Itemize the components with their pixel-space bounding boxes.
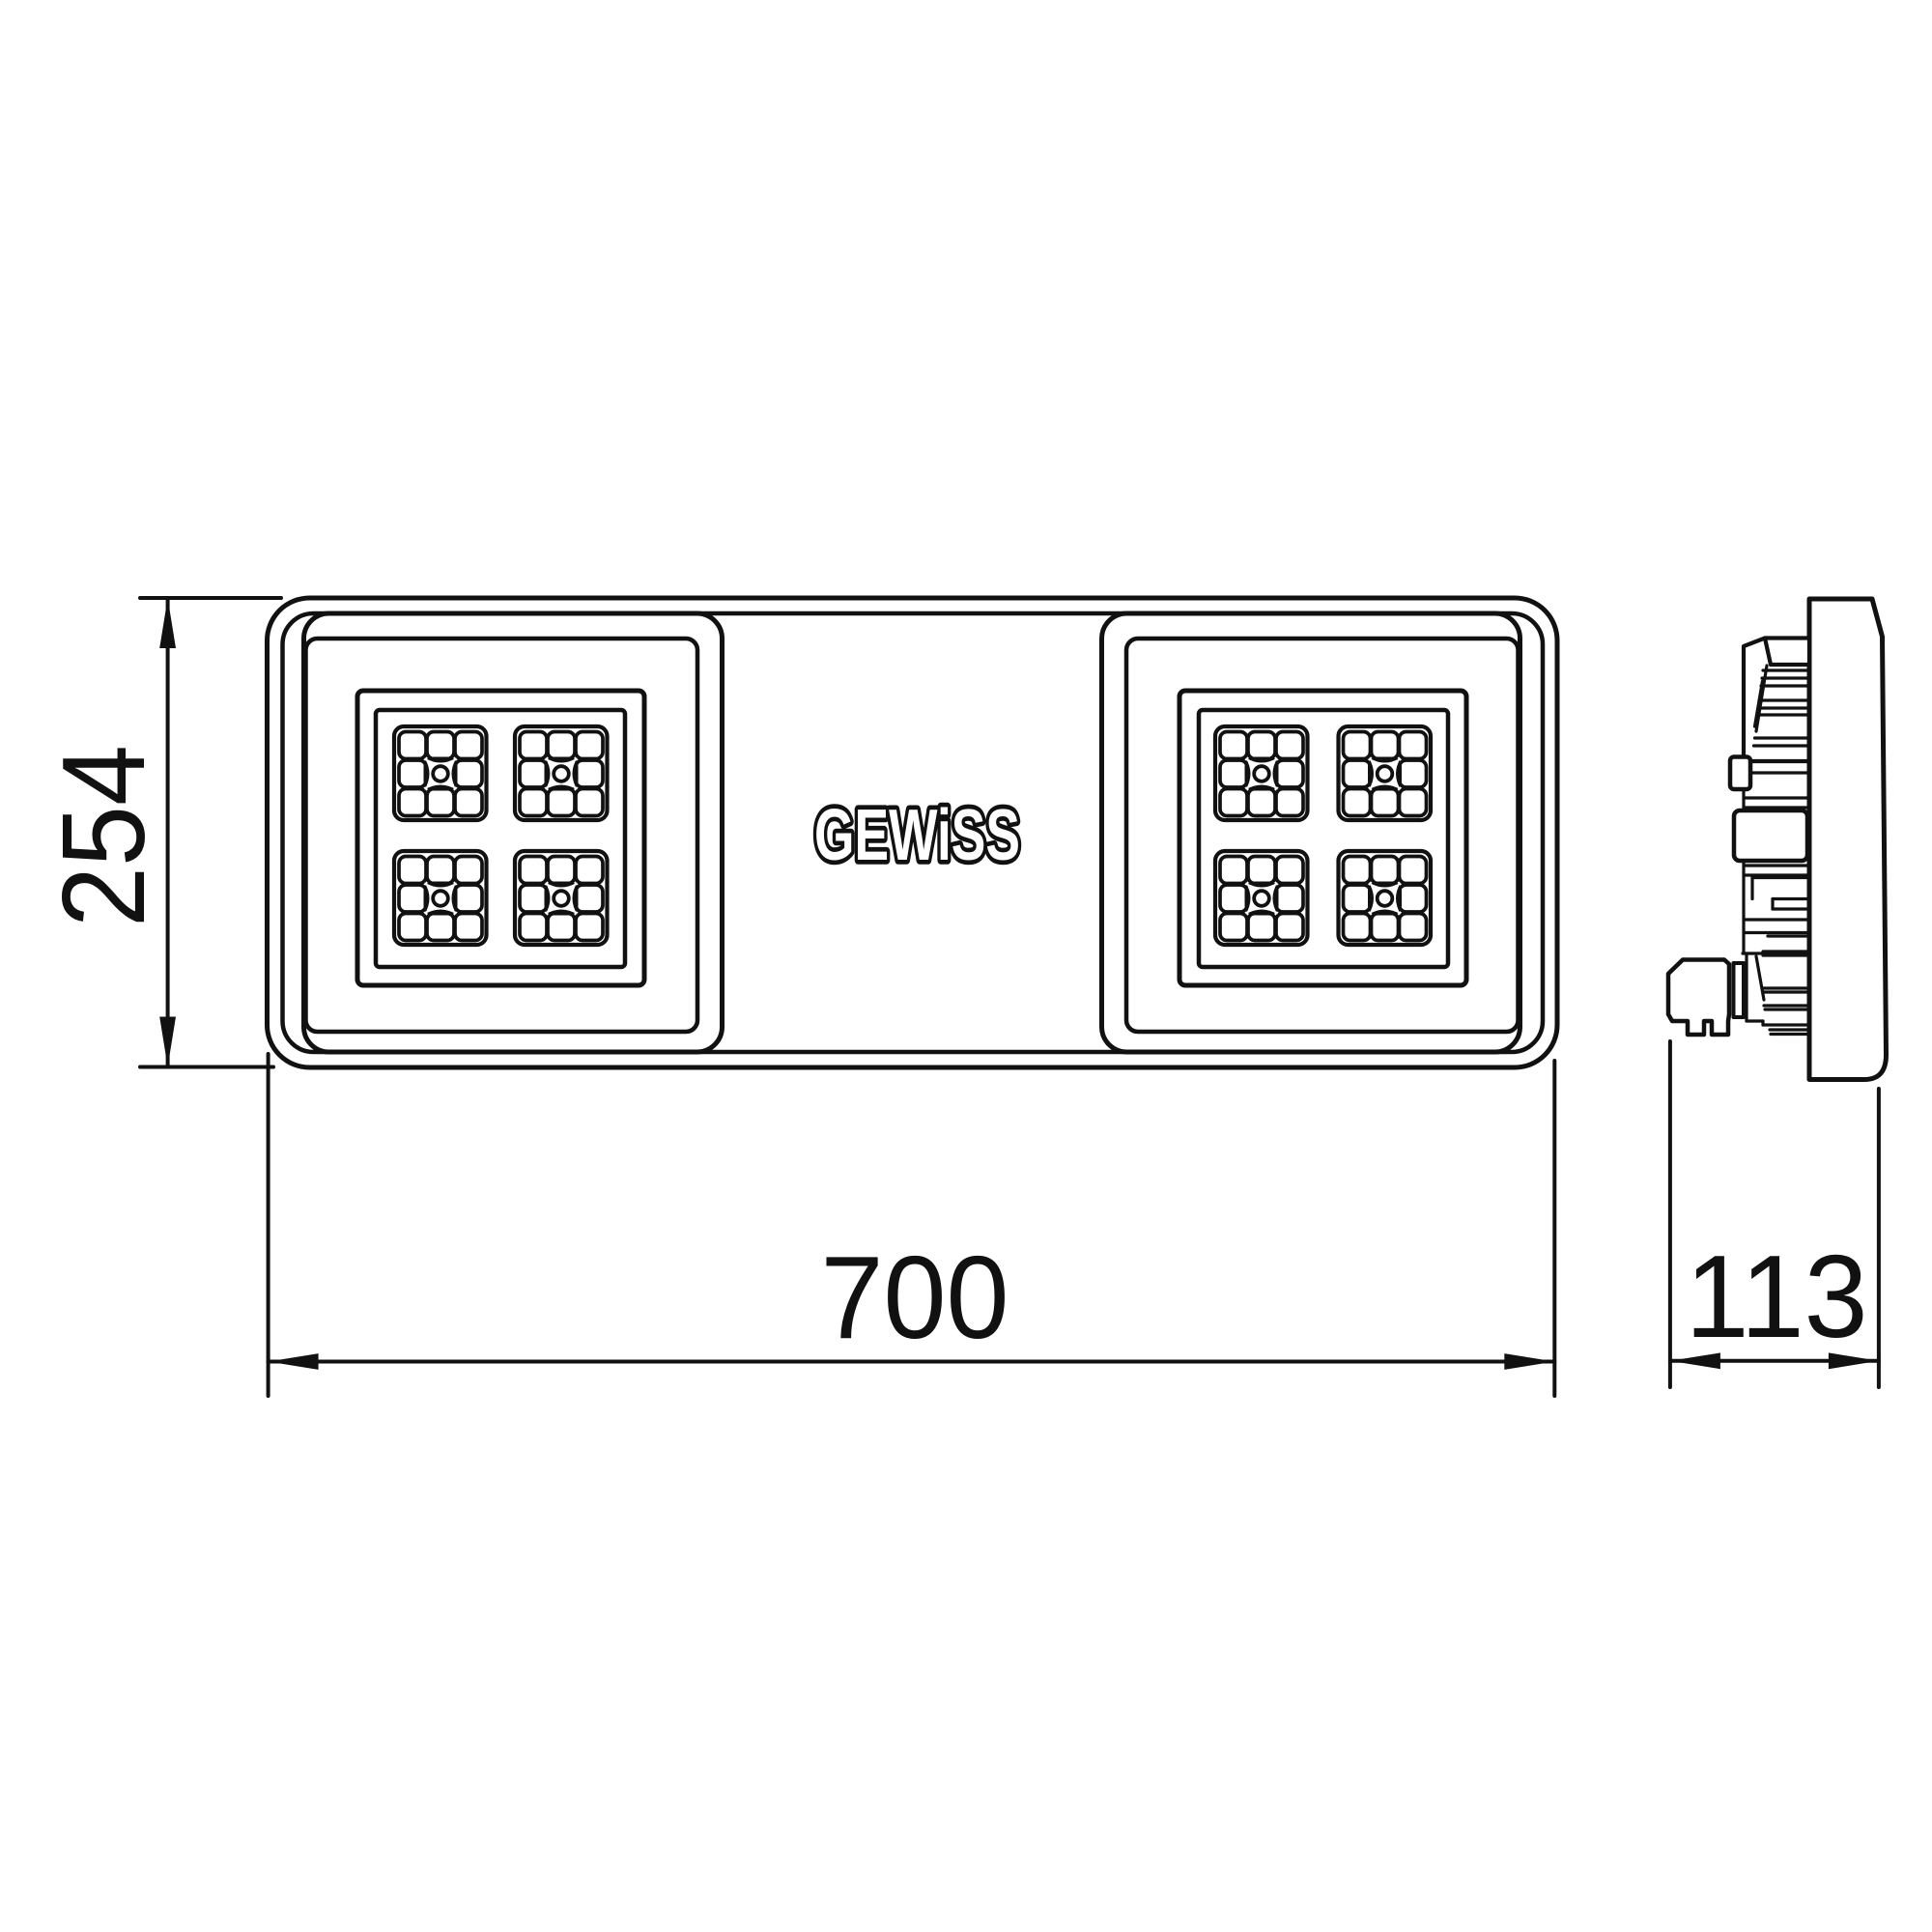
svg-text:700: 700 <box>821 1232 1009 1363</box>
svg-text:113: 113 <box>1686 1231 1868 1362</box>
svg-text:GEWiSS: GEWiSS <box>814 794 1020 875</box>
svg-text:254: 254 <box>38 745 169 927</box>
